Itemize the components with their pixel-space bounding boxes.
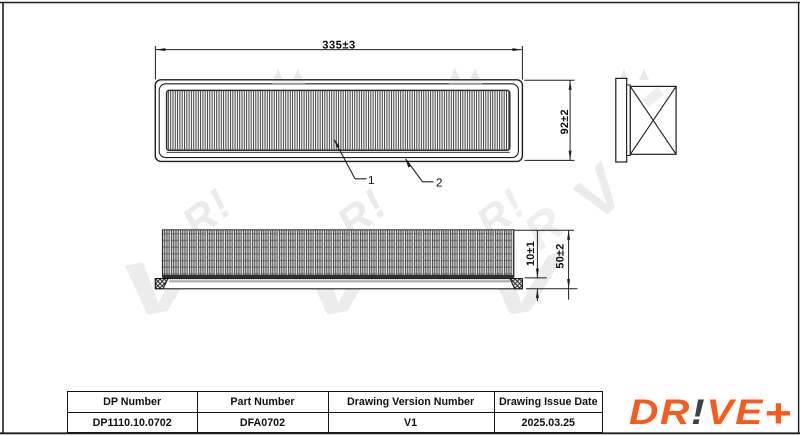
svg-text:2: 2 — [436, 177, 442, 190]
svg-text:335±3: 335±3 — [322, 40, 356, 52]
svg-text:92±2: 92±2 — [559, 109, 571, 134]
svg-text:1: 1 — [368, 174, 374, 187]
svg-text:50±2: 50±2 — [554, 243, 566, 268]
svg-text:10±1: 10±1 — [525, 241, 537, 266]
